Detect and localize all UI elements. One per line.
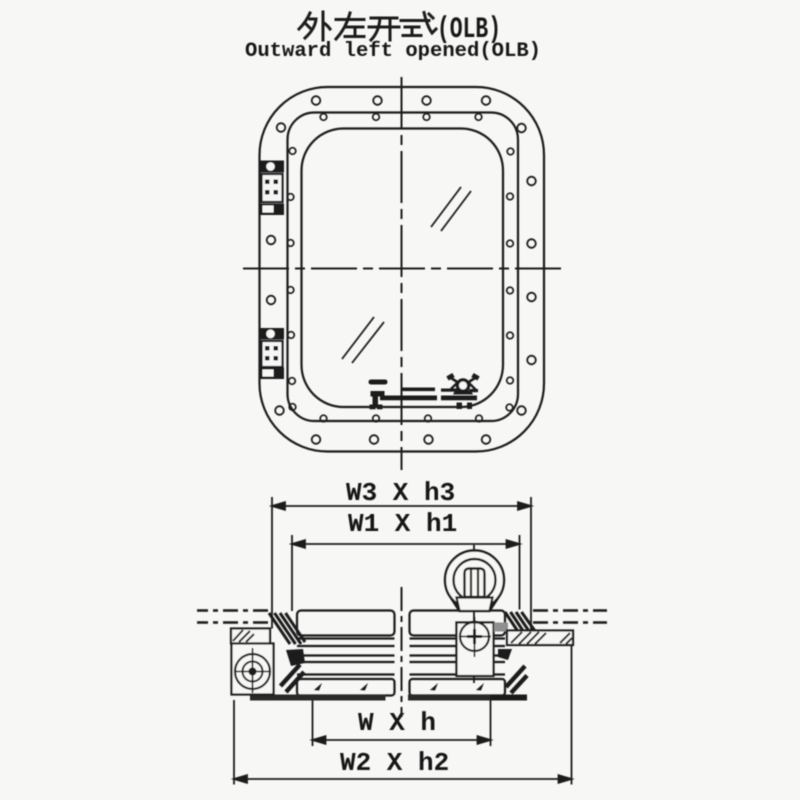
svg-text:W3 X h3: W3 X h3 xyxy=(346,478,455,508)
svg-text:W X h: W X h xyxy=(358,708,436,738)
svg-text:Outward left opened(OLB): Outward left opened(OLB) xyxy=(245,40,541,63)
svg-text:W1 X h1: W1 X h1 xyxy=(348,509,457,539)
svg-text:W2 X h2: W2 X h2 xyxy=(340,748,449,778)
